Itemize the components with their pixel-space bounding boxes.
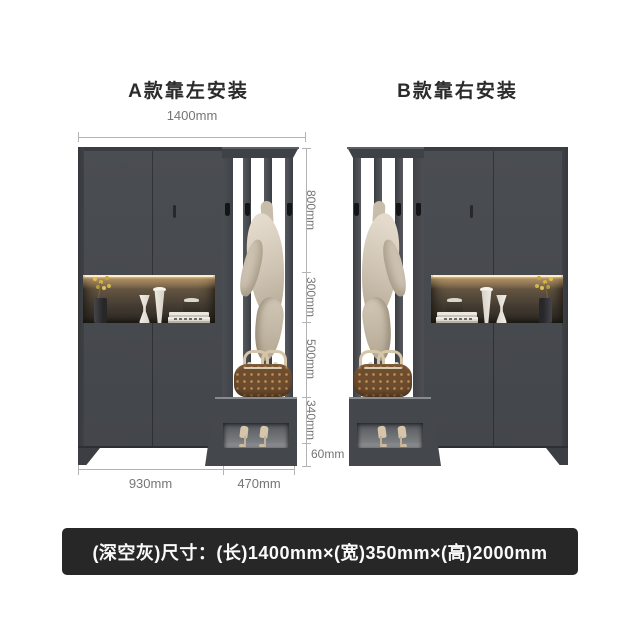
size-spec-bar: (深空灰)尺寸：(长)1400mm×(宽)350mm×(高)2000mm bbox=[62, 528, 578, 575]
led-strip bbox=[85, 275, 213, 277]
dim-800-label: 800mm bbox=[304, 185, 318, 235]
led-glow bbox=[83, 275, 215, 289]
unit-a-graphic bbox=[78, 147, 299, 466]
door-handle bbox=[173, 205, 176, 218]
door-handle bbox=[470, 205, 473, 218]
cabinet-unit-b bbox=[347, 147, 568, 466]
dim-500-label: 500mm bbox=[304, 334, 318, 384]
dim-tick bbox=[223, 465, 224, 475]
heel-toe bbox=[381, 444, 387, 447]
led-strip bbox=[433, 275, 561, 277]
flower-blossoms bbox=[549, 277, 553, 281]
white-cone-vase bbox=[480, 289, 493, 323]
cabinet-leg bbox=[78, 448, 100, 465]
dim-60-label: 60mm bbox=[311, 447, 351, 461]
white-goblet-vase bbox=[138, 295, 151, 323]
upper-door-divider bbox=[493, 151, 494, 275]
display-niche bbox=[431, 275, 563, 323]
lower-door-divider bbox=[493, 323, 494, 446]
round-box-lid bbox=[184, 298, 199, 302]
book-spine-text bbox=[442, 318, 472, 320]
dim-bottom-line bbox=[78, 469, 295, 470]
bag-zipper bbox=[244, 367, 282, 369]
dim-tick bbox=[302, 466, 311, 467]
dim-overall-width-line bbox=[78, 137, 306, 138]
product-dimension-diagram: A款靠左安装 B款靠右安装 1400mm 800mm 300mm 500mm 3… bbox=[0, 0, 640, 640]
shoe-bench bbox=[349, 397, 441, 466]
shoe-niche bbox=[357, 423, 423, 448]
lower-door-divider bbox=[152, 323, 153, 446]
coat-rack-shelf-top bbox=[222, 147, 299, 149]
coat-hook bbox=[287, 203, 292, 216]
dim-470-label: 470mm bbox=[223, 476, 295, 491]
cabinet-top-edge bbox=[421, 147, 568, 151]
size-spec-text: (深空灰)尺寸：(长)1400mm×(宽)350mm×(高)2000mm bbox=[92, 539, 547, 565]
bench-top-edge bbox=[215, 397, 297, 399]
dim-340-label: 340mm bbox=[304, 395, 318, 445]
title-variant-b: B款靠右安装 bbox=[347, 76, 568, 103]
dim-tick bbox=[302, 148, 311, 149]
heel-toe bbox=[401, 444, 407, 447]
white-goblet-vase bbox=[495, 295, 508, 323]
bag-zipper bbox=[364, 367, 402, 369]
dim-930-label: 930mm bbox=[78, 476, 223, 491]
dim-overall-width-label: 1400mm bbox=[78, 108, 306, 123]
cabinet-unit-a bbox=[78, 147, 299, 466]
handbag bbox=[354, 350, 412, 397]
dim-tick bbox=[302, 322, 311, 323]
book-stack bbox=[168, 312, 210, 323]
shoe-niche bbox=[223, 423, 289, 448]
upper-door-divider bbox=[152, 151, 153, 275]
round-box-lid bbox=[447, 298, 462, 302]
handbag bbox=[234, 350, 292, 397]
dim-tick bbox=[305, 132, 306, 142]
flower-blossoms bbox=[93, 277, 97, 281]
cabinet-leg bbox=[546, 448, 568, 465]
display-niche bbox=[83, 275, 215, 323]
cabinet-bottom-shadow bbox=[421, 446, 568, 448]
coat-rack-panel bbox=[413, 158, 424, 397]
coat-hook bbox=[245, 203, 250, 216]
led-glow bbox=[431, 275, 563, 289]
coat-hook bbox=[225, 203, 230, 216]
shoe-bench bbox=[205, 397, 297, 466]
coat-rack-shelf-top bbox=[347, 147, 424, 149]
heel-body bbox=[397, 426, 406, 439]
unit-a-graphic bbox=[347, 147, 568, 466]
dim-tick bbox=[78, 465, 79, 475]
cabinet-bottom-shadow bbox=[78, 446, 225, 448]
coat-rack-panel bbox=[222, 158, 233, 397]
heel-body bbox=[377, 426, 386, 439]
book-stack bbox=[436, 312, 478, 323]
coat-hook bbox=[354, 203, 359, 216]
dim-tick bbox=[294, 465, 295, 475]
book-spine-text bbox=[174, 318, 204, 320]
coat-hook bbox=[416, 203, 421, 216]
white-cone-vase bbox=[153, 289, 166, 323]
coat-hook bbox=[396, 203, 401, 216]
dark-flower-vase bbox=[539, 298, 552, 323]
dark-flower-vase bbox=[94, 298, 107, 323]
heel-toe bbox=[239, 444, 245, 447]
title-variant-a: A款靠左安装 bbox=[78, 76, 299, 103]
bench-top-edge bbox=[349, 397, 431, 399]
dim-tick bbox=[78, 132, 79, 142]
heel-toe bbox=[259, 444, 265, 447]
dim-300-label: 300mm bbox=[304, 272, 318, 322]
